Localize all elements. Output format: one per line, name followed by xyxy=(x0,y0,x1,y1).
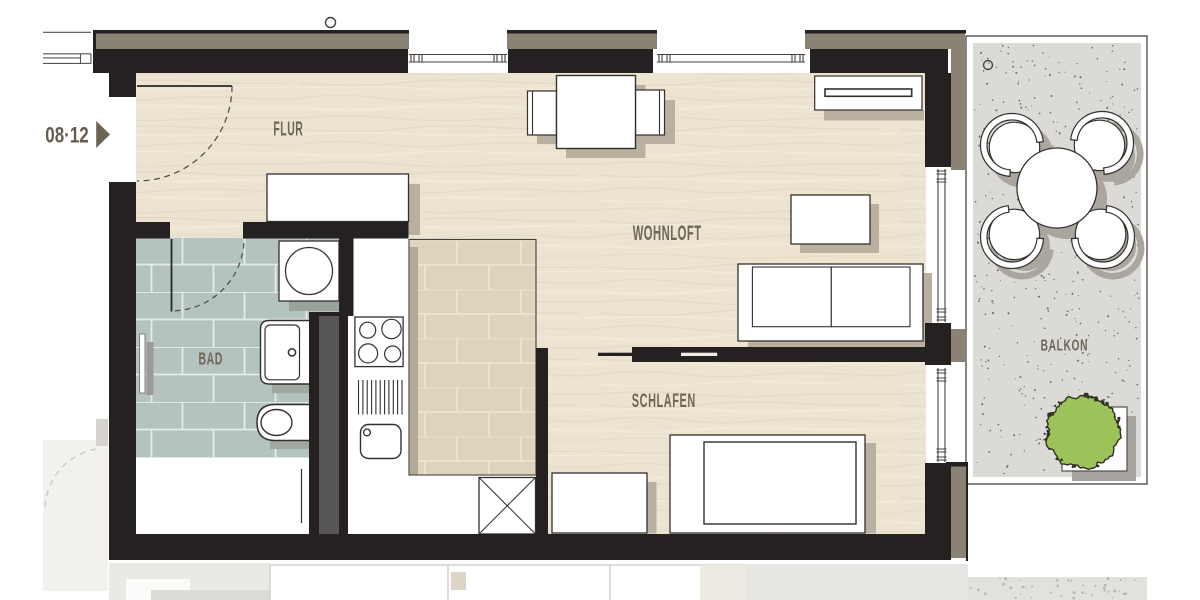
svg-text:BAD: BAD xyxy=(198,349,223,369)
svg-text:WOHNLOFT: WOHNLOFT xyxy=(633,222,702,245)
svg-text:SCHLAFEN: SCHLAFEN xyxy=(632,390,696,412)
svg-text:08·12: 08·12 xyxy=(45,122,89,147)
svg-text:FLUR: FLUR xyxy=(273,118,303,140)
svg-text:BALKON: BALKON xyxy=(1041,338,1089,355)
